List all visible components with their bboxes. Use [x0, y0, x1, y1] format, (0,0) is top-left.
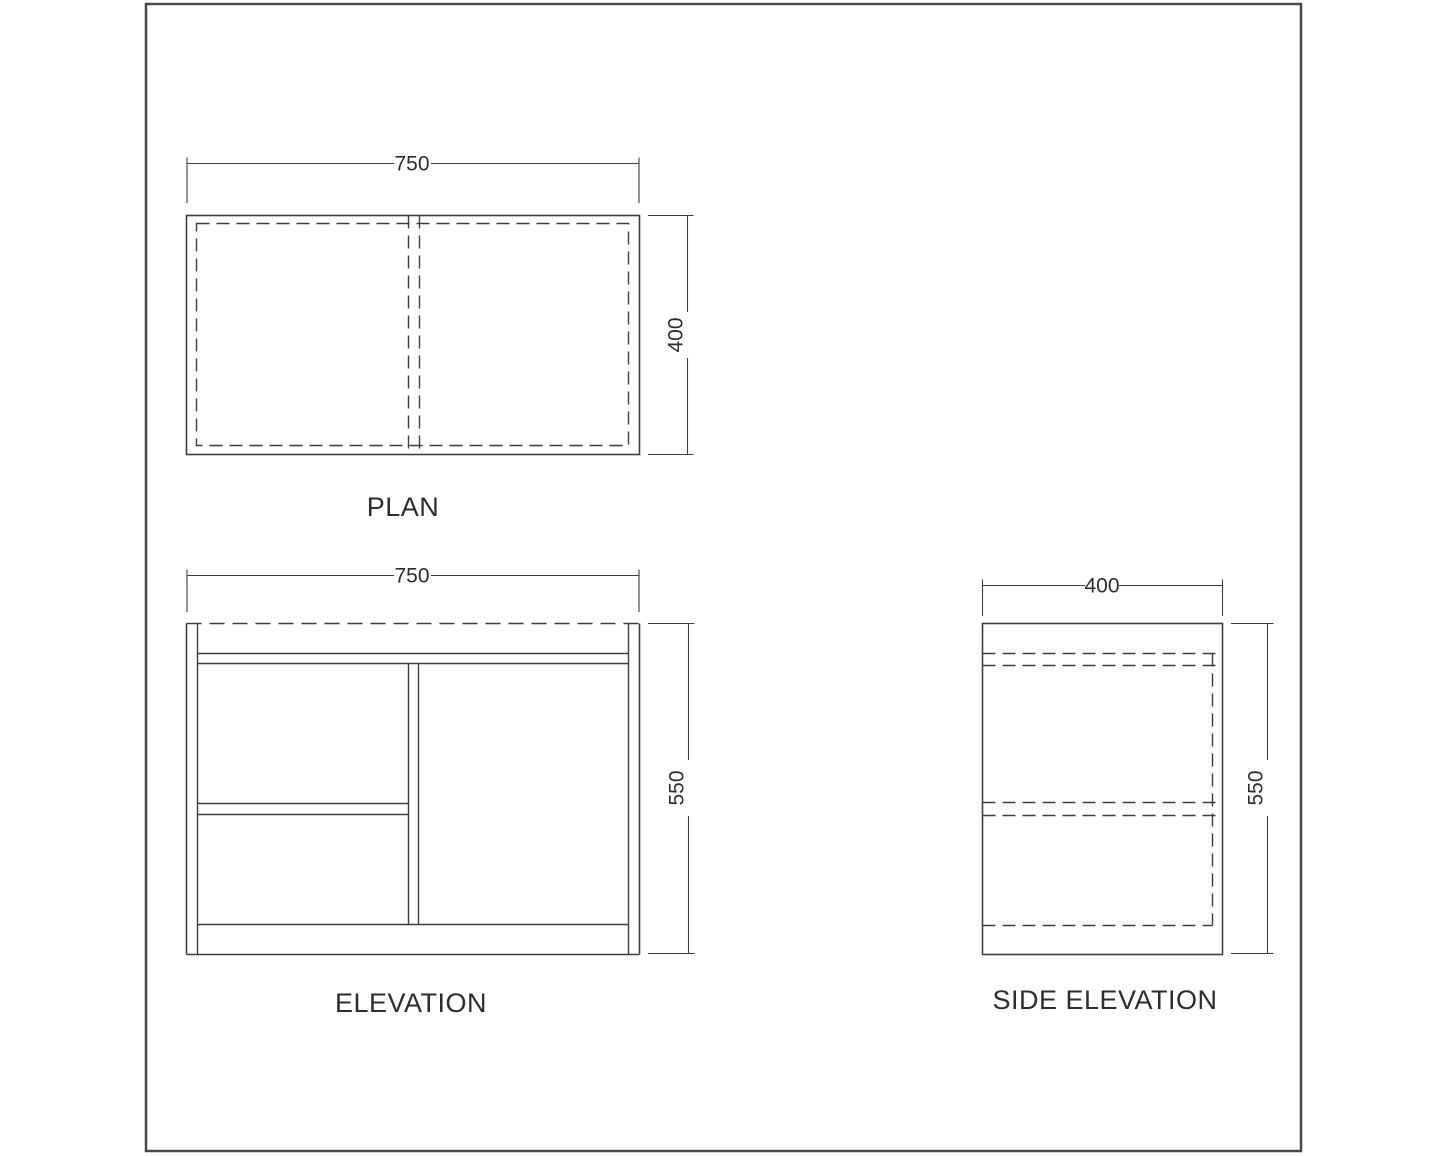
- plan-title: PLAN: [367, 492, 440, 522]
- elevation-height-value: 550: [666, 770, 689, 805]
- plan-view: 750 400 PLAN: [187, 153, 694, 523]
- side-elevation-outline: [983, 624, 1223, 955]
- side-elevation-view: 400 550 SIDE ELEVATION: [983, 575, 1274, 1016]
- side-width-value: 400: [1084, 575, 1119, 598]
- side-height-dimension: 550: [1231, 624, 1274, 954]
- sheet-border: [146, 4, 1301, 1151]
- elevation-width-dimension: 750: [187, 565, 639, 613]
- plan-width-dimension: 750: [187, 153, 639, 204]
- plan-width-value: 750: [394, 153, 429, 176]
- plan-depth-dimension: 400: [648, 216, 694, 455]
- elevation-view: 750 550 ELEVATION: [187, 565, 695, 1019]
- elevation-height-dimension: 550: [648, 624, 695, 954]
- elevation-title: ELEVATION: [335, 988, 487, 1018]
- plan-outline: [187, 216, 640, 455]
- plan-hidden-carcass: [197, 224, 629, 446]
- drawing-sheet: 750 400 PLAN: [0, 0, 1445, 1156]
- side-width-dimension: 400: [983, 575, 1223, 617]
- plan-depth-value: 400: [665, 317, 688, 352]
- side-height-value: 550: [1245, 770, 1268, 805]
- elevation-width-value: 750: [394, 565, 429, 588]
- side-elevation-title: SIDE ELEVATION: [992, 985, 1217, 1015]
